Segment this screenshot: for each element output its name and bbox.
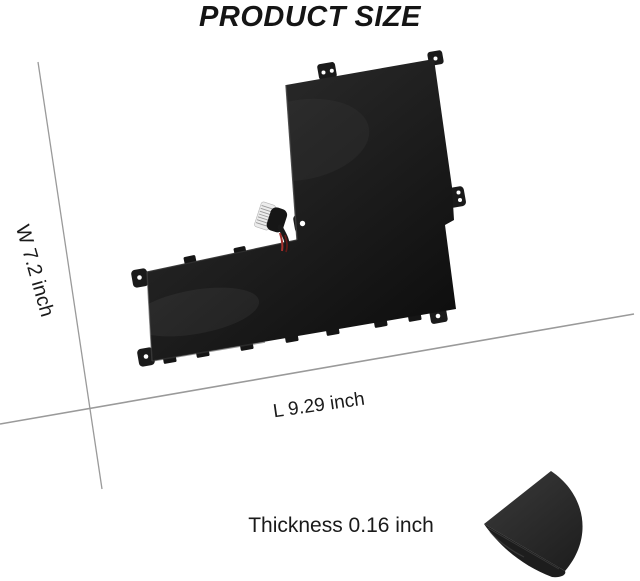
battery-photo: [127, 50, 466, 367]
product-diagram-canvas: [0, 0, 640, 581]
thickness-wedge: [484, 471, 583, 577]
page-title: PRODUCT SIZE: [199, 1, 421, 34]
thickness-label: Thickness 0.16 inch: [248, 514, 434, 538]
product-size-figure: PRODUCT SIZE W 7.2 inch L 9.29 inch Thic…: [0, 0, 640, 581]
width-dimension-line: [38, 62, 102, 489]
